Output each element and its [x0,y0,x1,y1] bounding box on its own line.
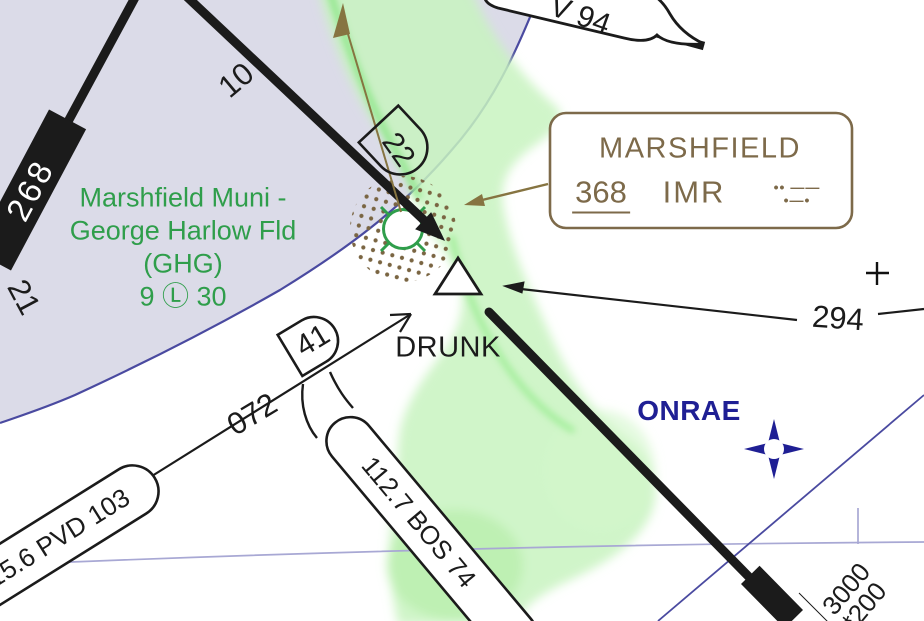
airport-name-line1: Marshfield Muni - [79,182,286,215]
ndb-ident: IMR [663,177,726,208]
ndb-name: MARSHFIELD [599,135,801,164]
airport-name-line3: (GHG) [143,248,222,281]
airport-name-line2: George Harlow Fld [70,215,297,248]
drunk-fix-label: DRUNK [395,334,501,363]
ndb-frequency: 368 [572,177,630,208]
ndb-morse-code: •• —— •—• [774,181,821,207]
airport-elevation-line: 9 Ⓛ 30 [139,281,226,314]
ndb-morse-row2: •—• [774,194,821,207]
bearing-294-label: 294 [811,301,865,336]
approach-chart-plan-view: 268 21 10 22 V 94 Marshfield Muni - Geor… [0,0,924,621]
onrae-fix-label: ONRAE [637,397,741,425]
